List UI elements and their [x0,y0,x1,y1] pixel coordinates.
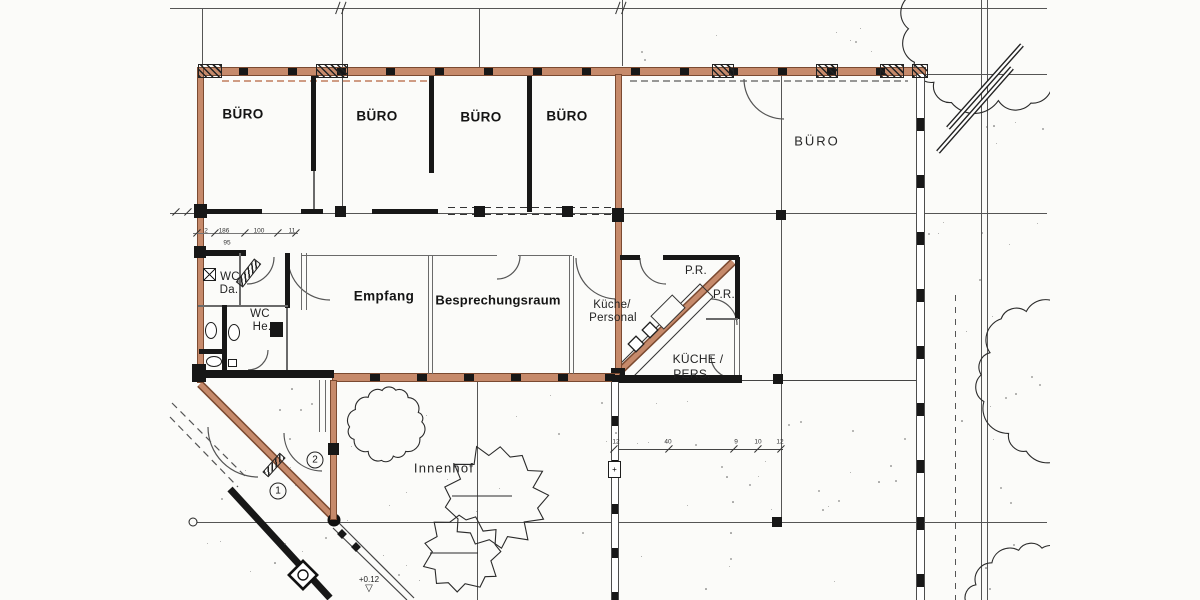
speckle [284,543,286,545]
door-arcs [208,79,784,477]
speckle [291,388,293,390]
axis-circle-marker [189,518,198,527]
wall-partition-2 [429,76,434,173]
speckle [726,476,728,478]
speckle [582,532,584,534]
dashed-diagonal-2 [170,417,238,487]
speckle [470,466,472,468]
wall-corridor-b [301,209,323,214]
door-arc-corridor [576,258,617,299]
tree-bottom-right [962,543,1096,600]
room-label-kueche-personal-2: Personal [589,312,637,324]
speckle [615,432,617,434]
wall-wc-bottom [198,370,292,378]
wall-corridor-dashed-2 [448,214,612,215]
branch-strokes [938,45,1022,152]
wall-hatch [912,64,928,78]
room-label-empfang: Empfang [354,289,415,304]
speckle [986,126,988,128]
room-label-pr-2: P.R. [713,289,735,301]
speckle [850,472,851,473]
speckle [961,420,963,422]
wall-wc-mid [198,305,288,307]
wall-partition-1 [311,76,316,171]
speckle [836,32,837,33]
speckle [732,501,734,503]
speckle [822,509,824,511]
wall-corridor-a [206,209,262,214]
wall-partition-kueche-b [573,256,574,374]
room-label-wc-herren-1: WC [250,308,270,320]
speckle [852,430,854,432]
speckle [558,433,560,435]
wall-hatch [816,64,838,78]
wall-pr-top-a [620,255,640,260]
speckle [383,555,384,556]
kitchen-counter-upper [651,295,685,329]
speckle [981,232,983,234]
wall-corridor-dashed-1 [448,207,612,208]
wall-hatch [712,64,734,78]
speckle [220,541,221,542]
tree-courtyard-2 [424,515,501,592]
room-label-buero-1: BÜRO [222,107,263,122]
toilet-icon [206,356,222,367]
speckle [749,484,751,486]
column [772,517,782,527]
speckle [648,442,649,443]
room-label-wc-damen-2: Da. [220,284,239,296]
room-label-wc-damen-1: WC [220,271,240,283]
column [335,206,346,217]
room-label-buero-4: BÜRO [546,109,587,124]
room-label-buero-3: BÜRO [460,110,501,125]
bush-courtyard [348,387,425,462]
wall-pr-east [735,257,740,319]
sink-icon [228,359,237,367]
wall-thin-corridor-3 [518,255,572,256]
room-label-buero-2: BÜRO [356,109,397,124]
position-marker-1: 1 [270,483,287,500]
entrance-detail-box [289,561,317,589]
column [776,210,786,220]
speckle [938,233,939,234]
room-label-wc-herren-2: He. [253,321,272,333]
canopy-post-1 [337,529,347,539]
speckle [279,409,281,411]
room-label-kueche-personal-1: Küche/ [593,299,631,311]
speckle [705,588,707,590]
level-marker-icon: ▽ [359,584,379,595]
window-detail-box: + [608,461,621,478]
window-band-south-wing [611,382,619,600]
position-marker-2: 2 [307,452,324,469]
wall-wc-inner-3 [199,349,223,354]
speckle [730,558,732,560]
toilet-icon [228,324,240,341]
speckle [644,59,646,61]
column [773,374,783,384]
highlight-diagonal-entrance [200,384,333,517]
wall-corridor-c [372,209,438,214]
wall-wc-east-thin [286,308,288,372]
speckle [325,537,327,539]
dim-text: 12 [776,439,783,446]
wall-kueche-east-b [739,319,740,377]
door-arc-besprechung [497,256,520,279]
sink-icon [203,268,216,281]
room-label-buero-right: BÜRO [794,134,840,149]
door-arc-wc-herren [248,350,268,370]
speckle [850,40,851,41]
wall-partition-3 [527,76,532,212]
area-label-innenhof: Innenhof [414,461,474,476]
speckle [289,438,291,440]
wall-thin-corridor-2 [430,255,497,256]
wall-block [612,208,624,222]
wall-center-vertical [615,74,622,380]
wall-hatch [316,64,348,78]
shower-icon [270,322,283,337]
speckle [245,470,246,471]
speckle [1015,393,1017,395]
room-label-besprechungsraum: Besprechungsraum [435,293,560,308]
speckle [828,506,829,507]
speckle [904,438,906,440]
wall-wc-east [285,253,290,308]
wall-hatch [198,64,222,78]
wall-block [328,443,339,455]
door-arc-pr1 [640,258,666,284]
toilet-icon [205,322,217,339]
wall-wc-inner-2 [222,305,227,370]
speckle [274,562,276,564]
speckle [695,444,697,446]
speckle [447,479,448,480]
wall-hatch [880,64,904,78]
speckle [993,125,995,127]
room-label-kueche-pers-2: PERS. [673,367,711,381]
wall-empfang-west-b [306,253,307,310]
speckle [966,331,967,332]
wall-pr2-floor [706,318,738,320]
room-label-pr-1: P.R. [685,265,707,277]
room-label-kueche-pers-1: KÜCHE / [673,352,724,366]
wall-partition-1-thin [313,171,315,211]
speckle [771,509,772,510]
door-arc-buero-right [744,79,784,119]
wall-right-boundary [916,74,925,600]
tree-right [976,297,1143,463]
wall-partition-empfang-b [432,256,433,374]
wall-partition-empfang-a [428,256,429,374]
speckle [860,28,861,29]
wall-empfang-west-a [301,253,302,310]
speckle [989,588,991,590]
speckle [878,481,880,483]
dim-text: 95 [223,240,230,247]
speckle [641,556,642,557]
wall-partition-kueche-a [569,256,570,374]
dark-diagonal-wall [230,489,330,598]
wall-entry-a [319,380,320,432]
wall-middle-window [332,373,620,382]
wall-empfang-sw [288,370,334,378]
speckle [990,406,991,407]
wall-thin-corridor-1 [302,255,433,256]
door-arc-empfang [288,258,330,300]
speckle [895,480,897,482]
wall-entry-b [325,380,326,432]
wall-pr-top-b [663,255,739,260]
speckle [419,580,420,581]
speckle [716,35,717,36]
floor-plan: + BÜRO BÜRO BÜRO BÜRO BÜRO Empfang Bespr… [0,0,1200,600]
speckle [985,567,987,569]
wall-kueche-east-a [734,319,735,377]
speckle [730,532,732,534]
column [562,206,573,217]
speckle [890,465,892,467]
speckle [476,511,477,512]
wall-left-outer [197,67,204,383]
column [474,206,485,217]
speckle [1042,128,1044,130]
speckle [601,402,603,404]
level-marker: +0.12 ▽ [359,576,379,595]
